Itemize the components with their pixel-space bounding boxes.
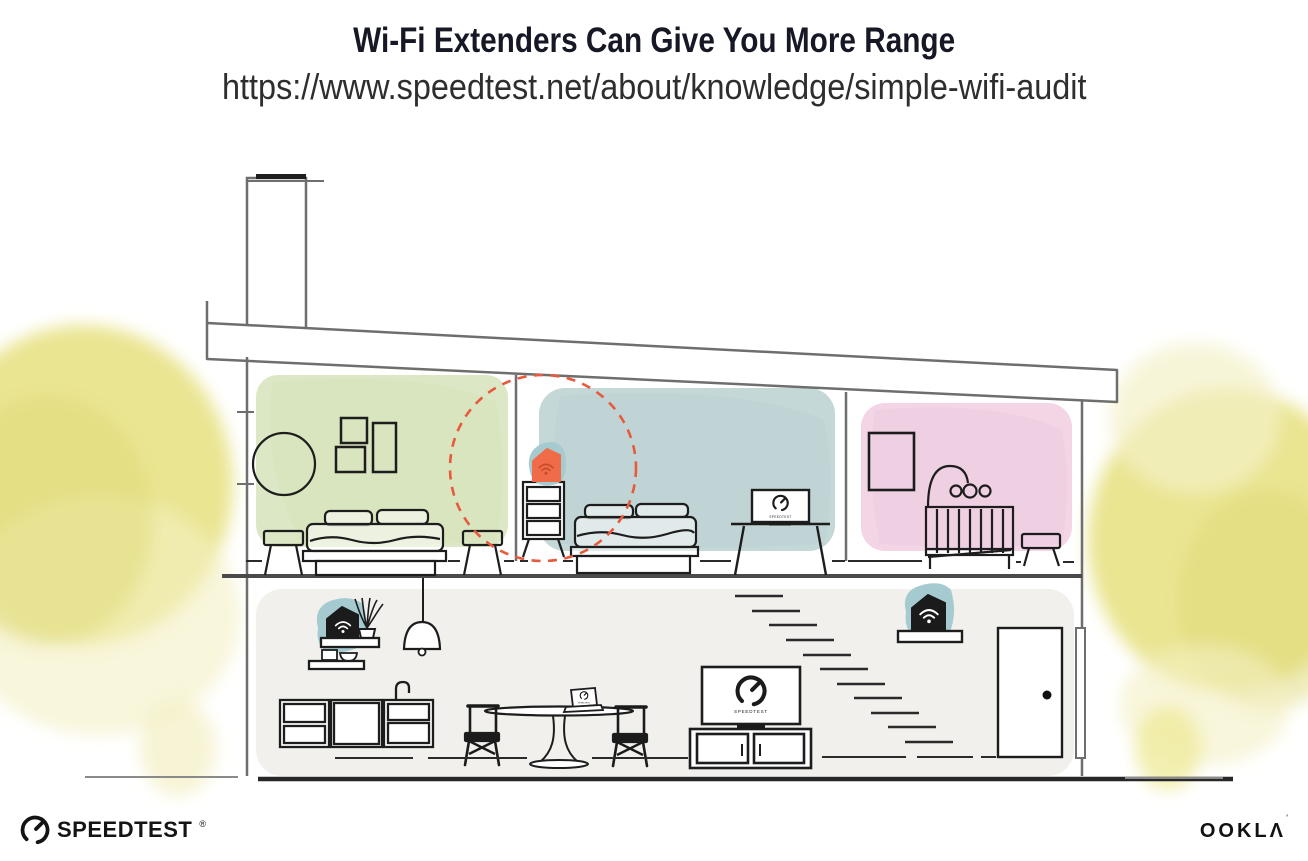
chimney — [247, 178, 306, 330]
registered-mark: ® — [199, 819, 206, 829]
tv-foot — [769, 522, 791, 526]
bed-base — [577, 556, 690, 573]
wall-shelf — [309, 661, 364, 669]
bowl — [340, 653, 357, 661]
bed-base — [316, 561, 435, 575]
wall-shelf — [898, 631, 962, 642]
trade-mark: ’ — [1286, 813, 1288, 823]
door-knob — [1043, 691, 1052, 700]
wifi-extender-highlighted — [529, 442, 566, 486]
speedtest-gauge-icon — [20, 815, 50, 845]
wall-shelf — [321, 638, 379, 647]
front-door — [998, 628, 1062, 757]
speedtest-logo: SPEEDTEST® — [20, 815, 206, 845]
downspout — [1076, 628, 1085, 758]
pillow — [636, 504, 688, 517]
pillow — [377, 510, 428, 524]
upstairs-tv: SPEEDTEST — [752, 490, 809, 526]
laptop-label: SPEEDTEST — [578, 703, 591, 705]
downstairs-tv: SPEEDTEST — [690, 667, 811, 768]
house-cross-section-illustration: SPEEDTEST — [0, 0, 1308, 861]
chimney-cap — [256, 174, 306, 179]
cup — [322, 650, 337, 660]
speedtest-wordmark: SPEEDTEST — [57, 817, 192, 843]
floor-line-dashes — [335, 757, 996, 758]
ookla-wordmark: OOKLΛ — [1200, 820, 1286, 842]
media-console — [690, 729, 811, 768]
downstairs-tv-label: SPEEDTEST — [734, 709, 768, 714]
ookla-logo: OOKLΛ’ — [1200, 820, 1288, 843]
bed-platform — [571, 547, 698, 556]
foliage-left — [0, 325, 240, 796]
upstairs-tv-label: SPEEDTEST — [769, 515, 792, 519]
bed-platform — [303, 551, 446, 561]
foliage-right — [1088, 343, 1308, 790]
